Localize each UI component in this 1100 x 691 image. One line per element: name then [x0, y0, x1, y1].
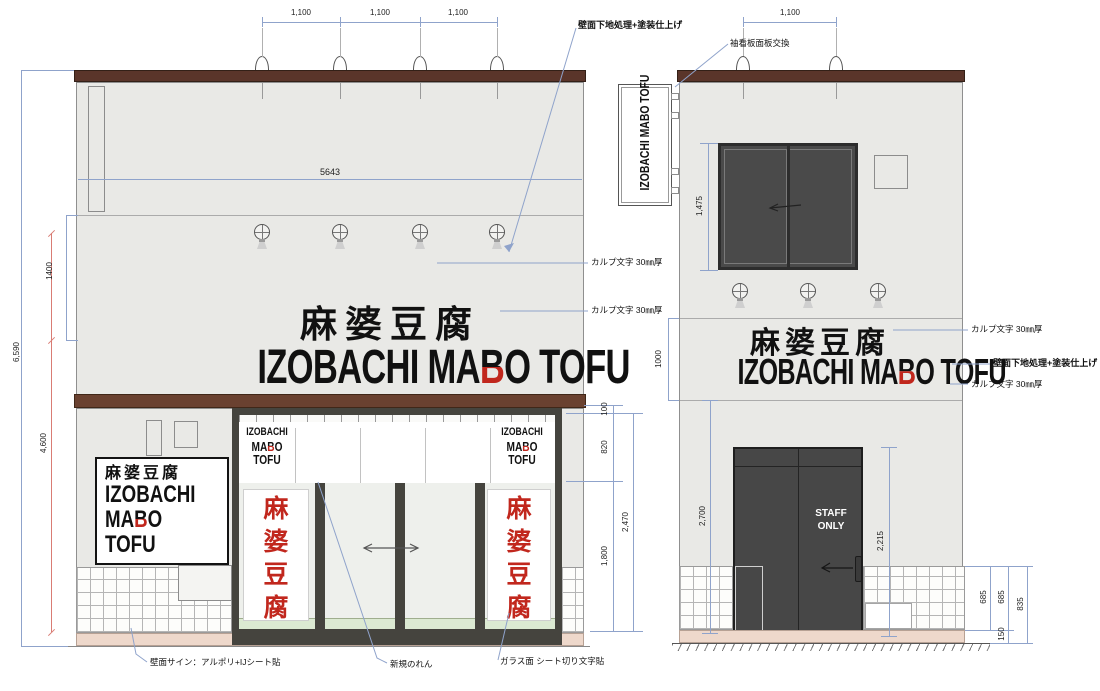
front-latin-logo: IZOBACHI MABBBO TOFU	[185, 342, 585, 394]
annotation-calp-3: カルプ文字 30㎜厚	[971, 324, 1042, 335]
dim-label: 685	[979, 582, 989, 612]
lamp-conduit	[262, 83, 263, 99]
roof-lamp-icon	[255, 56, 269, 70]
storefront-frame	[232, 408, 562, 645]
dim-cap	[566, 481, 623, 482]
dim-cap	[21, 646, 68, 647]
mid-dim-line-inner	[613, 405, 614, 631]
side-wall-box	[874, 155, 908, 189]
front-top-dim-line	[262, 22, 497, 23]
logo-red-b: BBB	[898, 352, 916, 392]
dim-riser	[497, 28, 498, 57]
side-parapet-cap	[677, 70, 965, 82]
dim-riser	[836, 28, 837, 57]
storefront-sill	[232, 629, 562, 645]
side-window	[718, 143, 858, 270]
sign-bracket	[671, 93, 679, 100]
dim-tick	[743, 17, 744, 27]
window-mullion	[787, 146, 790, 267]
wall-lamp-icon	[732, 283, 748, 309]
mid-dim-line-outer	[633, 413, 634, 631]
tile-dim-line	[990, 566, 991, 630]
lamp-conduit	[420, 83, 421, 99]
band-bracket-line	[66, 215, 67, 340]
annotation-calp-2: カルプ文字 30㎜厚	[591, 305, 662, 316]
lower-height-label: 4,600	[39, 421, 49, 465]
dim-label: 1,100	[436, 8, 480, 18]
window-dim-label: 1,475	[695, 184, 705, 228]
dim-cap	[700, 143, 718, 144]
front-width-dim-line	[78, 179, 582, 180]
front-tile-notch	[178, 565, 232, 601]
door-dim-line	[710, 400, 711, 633]
dim-tick	[262, 17, 263, 27]
window-leaf	[789, 149, 852, 264]
dim-cap	[881, 447, 897, 448]
dim-cap	[668, 318, 679, 319]
front-wall-sign: 麻婆豆腐 IZOBACHI MABBBO TOFU	[95, 457, 229, 565]
dim-label: 1,800	[600, 539, 610, 573]
sleeve-sign: IZOBACHI MABO TOFU	[618, 84, 672, 206]
wall-lamp-icon	[332, 224, 348, 250]
dim-cap	[702, 400, 718, 401]
tile-dim-line	[1008, 566, 1009, 643]
dim-tick	[48, 629, 55, 636]
wall-sign-line3: TOFU	[105, 532, 200, 557]
dim-label: 1,100	[768, 8, 812, 18]
wall-fixture-outline	[174, 421, 198, 448]
front-latin-logo-text: IZOBACHI MABBBO TOFU	[257, 342, 629, 394]
sleeve-sign-text: IZOBACHI MABO TOFU	[619, 85, 671, 205]
side-top-dim-line	[743, 22, 836, 23]
wall-sign-latin: IZOBACHI MABBBO TOFU	[105, 482, 227, 557]
dim-label: 820	[600, 432, 610, 462]
dim-riser	[340, 28, 341, 57]
side-band-dim-label: 1000	[654, 339, 664, 379]
annotation-wall-finish-right: 壁面下地処理+塗装仕上げ	[993, 358, 1097, 369]
front-wall-joint	[77, 215, 583, 216]
logo-post: O TOFU	[504, 341, 630, 394]
staff-only-label: STAFF ONLY	[802, 508, 860, 533]
dim-riser	[262, 28, 263, 57]
dim-label: 100	[600, 394, 610, 424]
door-handle	[855, 556, 862, 582]
lamp-conduit	[340, 83, 341, 99]
window-leaf	[724, 149, 787, 264]
dim-tick	[420, 17, 421, 27]
logo-red-b: BBB	[134, 507, 148, 532]
elevation-drawing: 5643 麻婆豆腐 IZOBACHI MABBBO TOFU 1,100 1,1…	[0, 0, 1100, 691]
ground-hatch	[672, 643, 990, 651]
dim-cap	[965, 566, 1033, 567]
dim-label: 1,100	[358, 8, 402, 18]
annotation-wall-sign: 壁面サイン：アルポリ+IJシート貼	[150, 657, 281, 668]
annotation-calp-4: カルプ文字 30㎜厚	[971, 379, 1042, 390]
door-dim-label: 2,700	[698, 494, 708, 538]
annotation-new-noren: 新規のれん	[390, 659, 433, 670]
front-width-dim-label: 5643	[300, 167, 360, 177]
lamp-conduit	[836, 83, 837, 99]
dim-cap	[668, 400, 679, 401]
sign-bracket	[671, 168, 679, 175]
wall-fixture-outline	[146, 420, 162, 456]
window-dim-line	[708, 143, 709, 270]
tile-dim-line	[1027, 566, 1028, 643]
dim-label: 150	[997, 619, 1007, 649]
wall-lamp-icon	[412, 224, 428, 250]
dim-label: 1,100	[279, 8, 323, 18]
wall-lamp-icon	[870, 283, 886, 309]
dim-cap	[702, 633, 718, 634]
side-tile-left	[679, 566, 733, 630]
annotation-wall-finish-top: 壁面下地処理+塗装仕上げ	[578, 20, 682, 31]
total-height-label: 6,590	[12, 330, 22, 374]
door-sub-dim-label: 2,215	[876, 519, 886, 563]
wall-lamp-icon	[254, 224, 270, 250]
side-latin-logo: IZOBACHI MABBBO TOFU	[680, 352, 960, 392]
front-ground-line	[68, 646, 590, 647]
annotation-glass-sheet: ガラス面 シート切り文字貼	[500, 656, 604, 667]
lamp-conduit	[497, 83, 498, 99]
annotation-sleeve-sign: 袖看板面板交換	[730, 38, 790, 49]
side-wall-joint	[680, 400, 962, 401]
dim-cap	[66, 215, 78, 216]
front-wall-strip	[88, 86, 105, 212]
dim-label: 685	[997, 582, 1007, 612]
dim-cap	[881, 636, 897, 637]
dim-cap	[700, 270, 718, 271]
wall-sign-kanji: 麻婆豆腐	[105, 463, 227, 482]
logo-red-b: BBB	[480, 342, 504, 394]
door-center-line	[798, 449, 799, 631]
wall-sign-line1: IZOBACHI	[105, 482, 200, 507]
sign-bracket	[671, 187, 679, 194]
dim-cap	[66, 340, 78, 341]
front-tile-right	[561, 567, 584, 633]
wall-lamp-icon	[800, 283, 816, 309]
dim-riser	[420, 28, 421, 57]
logo-pre: IZOBACHI MA	[257, 341, 479, 394]
roof-lamp-icon	[413, 56, 427, 70]
side-base-band	[679, 630, 965, 643]
dim-tick	[497, 17, 498, 27]
front-kanji-logo: 麻婆豆腐	[250, 294, 530, 348]
roof-lamp-icon	[829, 56, 843, 70]
roof-lamp-icon	[490, 56, 504, 70]
lamp-conduit	[743, 83, 744, 99]
wall-lamp-icon	[489, 224, 505, 250]
roof-lamp-icon	[736, 56, 750, 70]
front-parapet-cap	[74, 70, 586, 82]
door-sub-dim-line	[889, 447, 890, 636]
dim-label: 835	[1016, 589, 1026, 619]
roof-lamp-icon	[333, 56, 347, 70]
dim-tick	[340, 17, 341, 27]
band-height-label: 1400	[45, 249, 55, 293]
dim-cap	[21, 70, 74, 71]
annotation-calp-1: カルプ文字 30㎜厚	[591, 257, 662, 268]
front-brown-band	[74, 394, 586, 408]
dim-tick	[836, 17, 837, 27]
sign-bracket	[671, 112, 679, 119]
dim-cap	[590, 631, 643, 632]
dim-label: 2,470	[621, 500, 631, 544]
wall-sign-line2: MABBBO	[105, 507, 200, 532]
side-band-dim-line	[668, 318, 669, 400]
